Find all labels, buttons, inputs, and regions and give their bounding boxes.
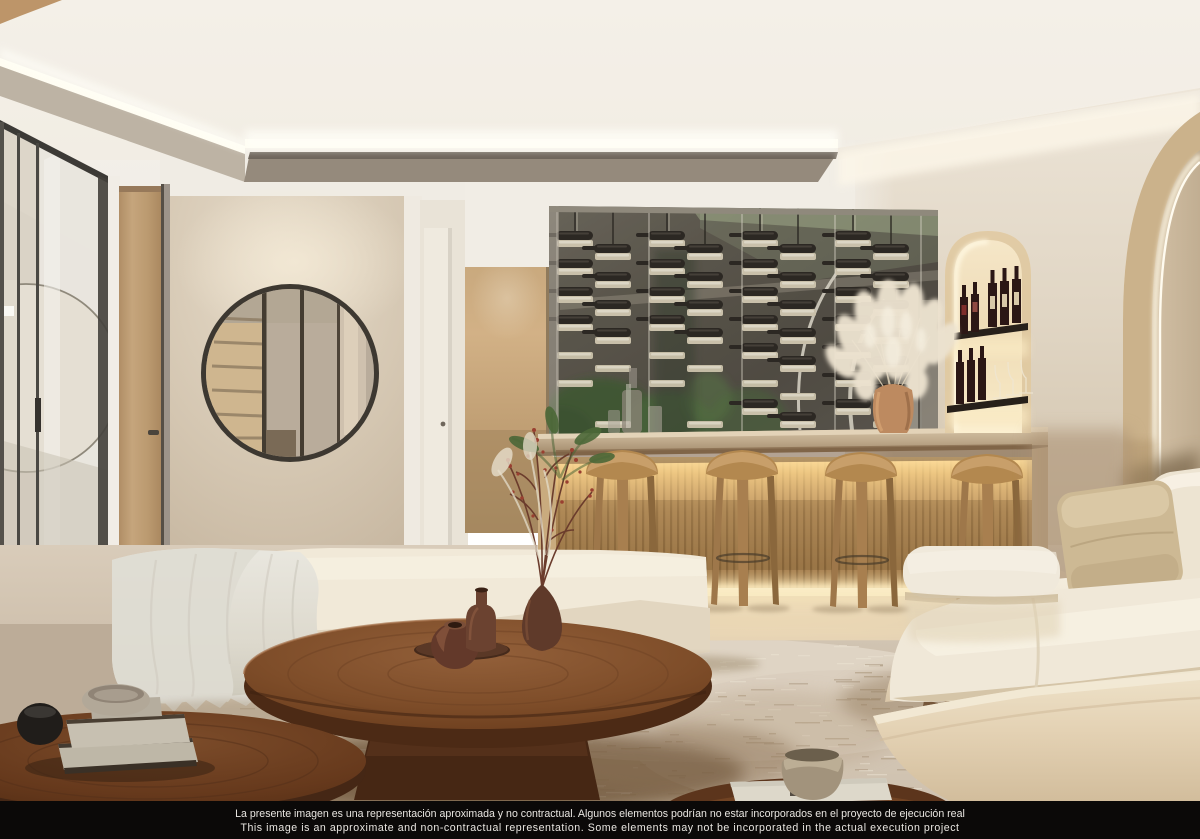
svg-text:La presente imagen es una repr: La presente imagen es una representación… [235,808,965,820]
svg-text:This image is an approximate a: This image is an approximate and non-con… [240,822,959,834]
